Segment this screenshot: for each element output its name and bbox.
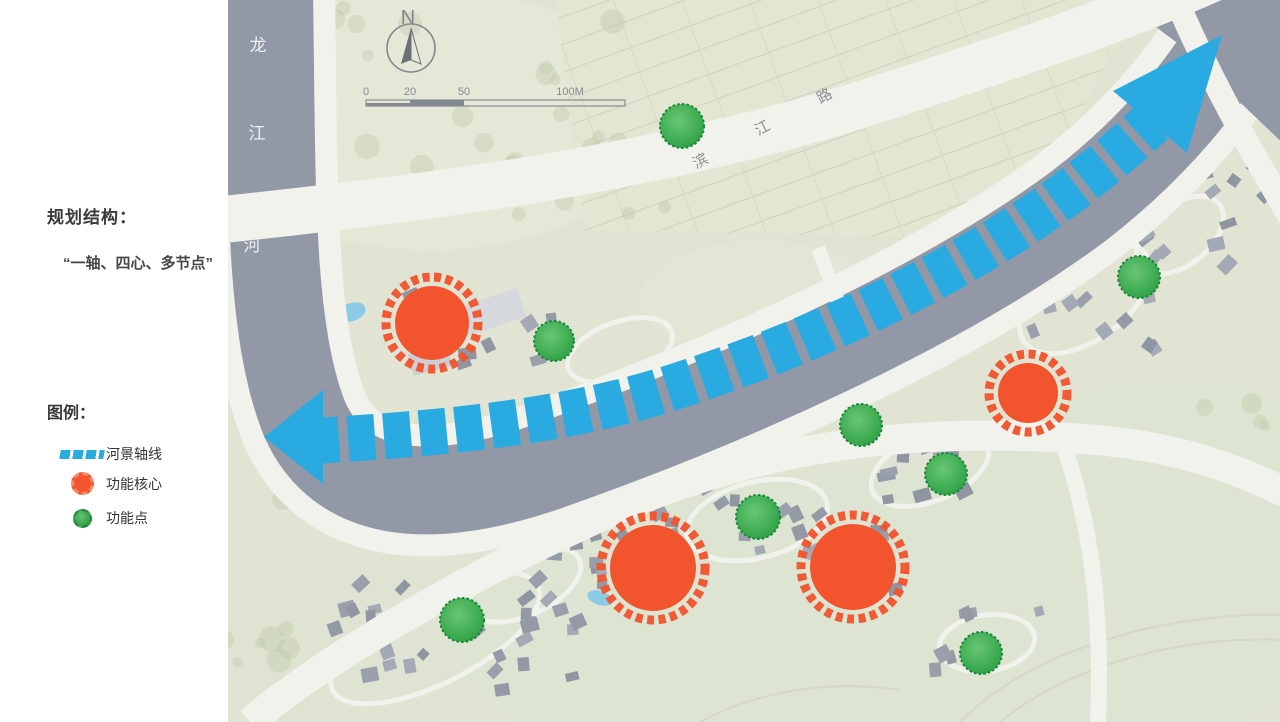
core-circle-swatch-icon	[71, 472, 94, 495]
function-point-6	[736, 495, 780, 539]
river-name-char-3: 河	[244, 236, 261, 255]
function-point-5	[925, 453, 967, 495]
page-title: 规划结构：	[47, 203, 137, 228]
legend-item-river-axis: 河景轴线	[58, 444, 162, 464]
function-point-4	[840, 404, 882, 446]
point-circle-swatch-icon	[73, 509, 92, 528]
legend-label-function-core: 功能核心	[106, 474, 162, 494]
legend-title: 图例：	[47, 399, 95, 423]
function-point-1	[660, 104, 704, 148]
page-subtitle: “一轴、四心、多节点”	[63, 252, 213, 273]
scale-bar-segment	[410, 100, 464, 106]
legend-label-river-axis: 河景轴线	[106, 444, 162, 464]
scale-label-0: 0	[363, 86, 369, 98]
legend-item-function-core: 功能核心	[58, 472, 162, 495]
function-point-3	[1118, 256, 1160, 298]
function-point-2	[534, 321, 574, 361]
planning-structure-diagram: 龙 江 河 滨 江 路 N 0 20 50 100M	[0, 0, 1280, 722]
river-name-char-1: 龙	[250, 36, 267, 55]
function-point-7	[440, 598, 484, 642]
scale-bar-half-segment	[366, 103, 410, 106]
scale-label-20: 20	[404, 86, 416, 98]
left-panel: 规划结构： “一轴、四心、多节点” 图例： 河景轴线 功能核心 功能点	[0, 0, 228, 722]
scale-label-100: 100M	[556, 86, 584, 98]
scale-label-50: 50	[458, 86, 470, 98]
river-name-char-2: 江	[249, 124, 266, 143]
axis-line-swatch-icon	[59, 450, 105, 459]
legend-item-function-point: 功能点	[58, 508, 148, 528]
function-point-8	[960, 632, 1002, 674]
legend-label-function-point: 功能点	[106, 508, 148, 528]
